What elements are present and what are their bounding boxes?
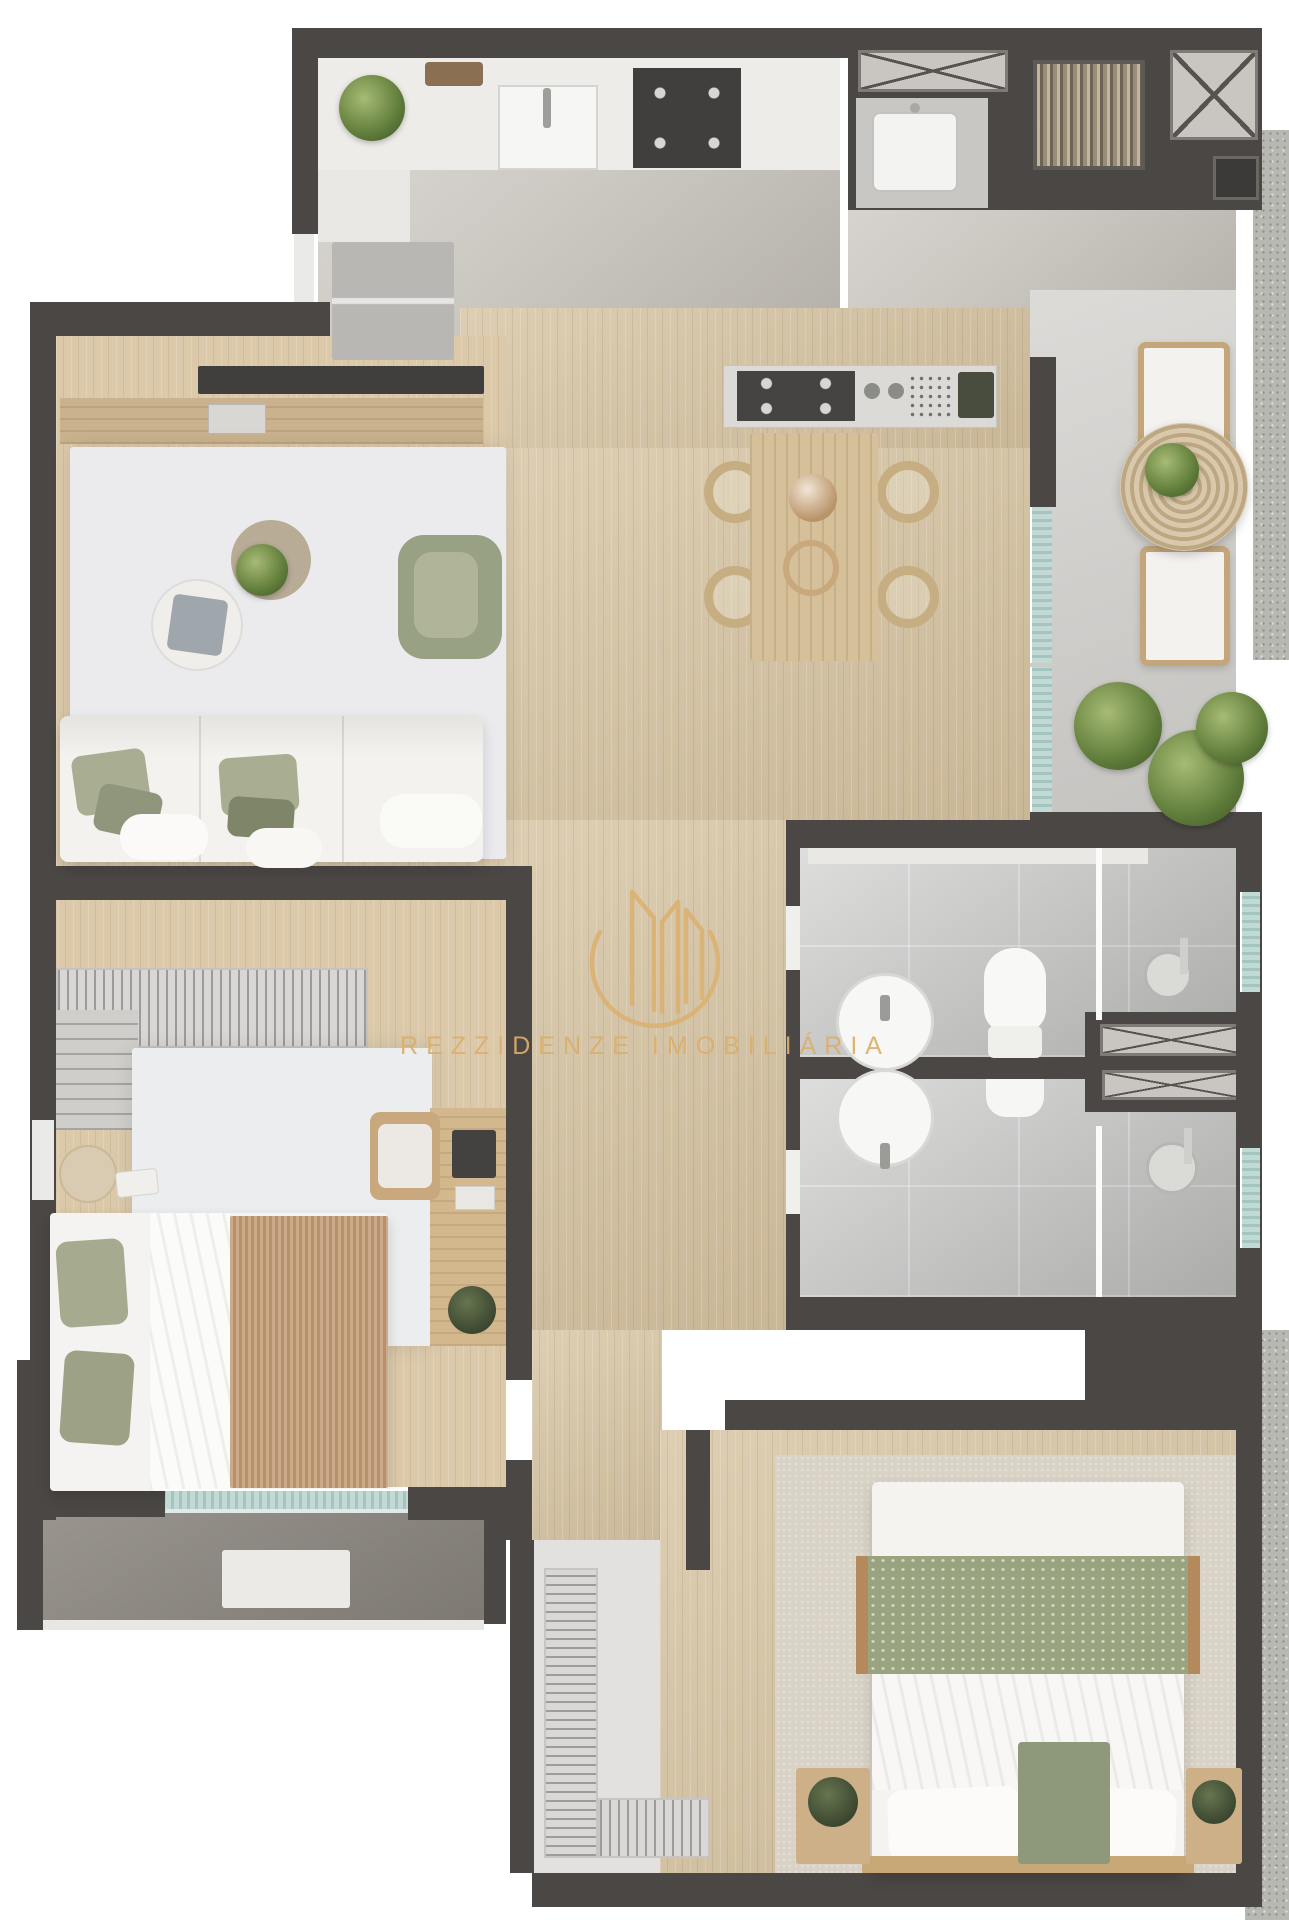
wall-living-left <box>30 302 56 900</box>
coffee-table-plant <box>236 544 288 596</box>
bath1-shower-arm <box>1180 938 1188 974</box>
desk-plant <box>448 1286 496 1334</box>
desk-chair-cushion <box>378 1124 432 1188</box>
wall-terrace-right <box>484 1517 506 1624</box>
bath2-toilet <box>986 1079 1044 1117</box>
media-device <box>208 404 266 434</box>
bath2-faucet <box>880 1143 890 1169</box>
wardrobe-shelves <box>56 1010 138 1130</box>
bed1-blanket <box>230 1216 388 1488</box>
bath1-toilet-seat <box>988 1026 1042 1058</box>
wall-living-top <box>30 302 330 336</box>
bath2-shower-arm <box>1184 1128 1192 1164</box>
wall-top <box>292 28 848 58</box>
terrace-bench <box>222 1550 350 1608</box>
laundry-faucet <box>910 103 920 113</box>
bath1-faucet <box>880 995 890 1021</box>
hatch-duct-top <box>858 50 1008 92</box>
laptop <box>452 1130 496 1178</box>
stove <box>633 68 741 168</box>
wall-bedroom1-bottom-left <box>43 1487 165 1517</box>
island-vent <box>908 374 954 418</box>
island-knob-1 <box>864 383 880 399</box>
door-sill-bath2 <box>786 1150 800 1214</box>
closet-rack-side <box>544 1568 598 1858</box>
wall-balcony-left <box>1030 357 1056 507</box>
wall-living-bottom <box>30 866 506 900</box>
hatch-shaft-corner <box>1170 50 1258 140</box>
kitchen-counter-side <box>318 170 410 242</box>
kitchen-faucet <box>543 88 551 128</box>
nightstand-right-plant <box>1192 1780 1236 1824</box>
bed1-pillow-1 <box>55 1238 129 1329</box>
wall-bottom <box>532 1873 1262 1907</box>
glass-cabinet <box>1033 60 1145 170</box>
bed2-pillow-left <box>887 1786 1023 1863</box>
shaft-hatch-2 <box>1102 1070 1240 1100</box>
table-bowl <box>789 474 837 522</box>
dark-box <box>1213 156 1259 200</box>
kitchen-plant <box>339 75 405 141</box>
sofa-pillow-white-2 <box>246 828 322 868</box>
wall-closet-left <box>510 1540 534 1873</box>
cutting-board <box>425 62 483 86</box>
window-balcony-1 <box>1030 507 1052 663</box>
balcony-chair-bottom <box>1140 546 1230 666</box>
island-cooktop <box>737 371 855 421</box>
balcony-table-plant <box>1145 443 1199 497</box>
dining-chair-4 <box>877 566 939 628</box>
wall-hall-left-seg <box>506 1460 532 1540</box>
island-sink <box>958 372 994 418</box>
brand-logo-icon <box>570 852 740 1042</box>
bed1-bench <box>166 1489 408 1511</box>
dining-chair-3 <box>877 461 939 523</box>
fridge <box>332 242 454 360</box>
bedside-table <box>59 1145 117 1203</box>
tv-console <box>60 398 483 444</box>
nightstand-left-plant <box>808 1777 858 1827</box>
balcony-plant-3 <box>1196 692 1268 764</box>
balcony-plant-1 <box>1074 682 1162 770</box>
bed1-duvet <box>150 1213 230 1491</box>
sofa-pillow-white-1 <box>120 814 208 860</box>
bath1-toilet-bowl <box>984 948 1046 1032</box>
floor-plan-render: REZZIDENZE IMOBILIÁRIA <box>0 0 1289 1920</box>
door-sill-bath1 <box>786 906 800 970</box>
table-plate <box>783 540 839 596</box>
wall-bedroom2-left <box>686 1430 710 1570</box>
watermark-text: REZZIDENZE IMOBILIÁRIA <box>340 1032 950 1066</box>
window-bath2 <box>1240 1148 1260 1248</box>
bath1-shower-glass <box>1096 848 1102 1020</box>
laundry-sink <box>872 112 958 192</box>
window-bedroom1-left <box>32 1120 54 1200</box>
armchair-cushion <box>414 552 478 638</box>
bed2-blanket <box>856 1556 1200 1674</box>
wall-terrace-left <box>17 1360 43 1630</box>
bedside-tray <box>115 1168 159 1198</box>
wall-bedroom1-bottom-right <box>408 1487 506 1520</box>
closet-rack-bottom <box>598 1798 710 1858</box>
sofa-pillow-white-3 <box>380 794 482 848</box>
wall-kitchen-left <box>292 28 318 234</box>
island-knob-2 <box>888 383 904 399</box>
bed1-pillow-2 <box>59 1350 135 1447</box>
notepad <box>455 1186 495 1210</box>
wall-bedroom2-top <box>725 1400 1236 1430</box>
window-balcony-2 <box>1030 667 1052 812</box>
shaft-hatch-1 <box>1100 1024 1242 1056</box>
tv <box>198 366 484 394</box>
window-kitchen-left <box>294 234 314 312</box>
wall-bedroom1-right <box>506 866 532 1380</box>
terrace-sill <box>43 1620 484 1630</box>
bath2-shower-glass <box>1096 1126 1102 1297</box>
window-bath1 <box>1240 892 1260 992</box>
coffee-table-tray <box>166 593 228 656</box>
bed2-towel <box>1018 1742 1110 1864</box>
